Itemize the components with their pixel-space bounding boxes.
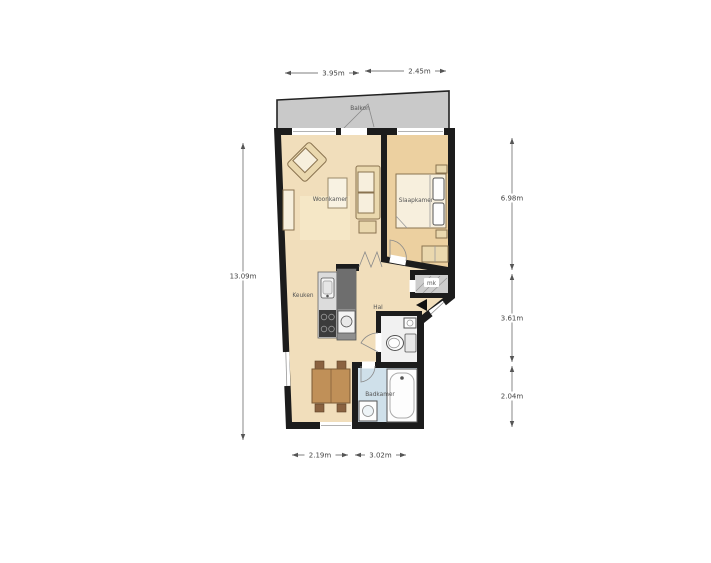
stove: [319, 310, 336, 337]
oven: [338, 311, 355, 333]
dim-arrow: [510, 356, 514, 362]
dim-label: 6.98m: [501, 195, 524, 203]
dimension-bottom-right: 3.02m: [355, 451, 406, 460]
bedroom-label: Slaapkamer: [399, 198, 434, 204]
kitchen-label: Keuken: [292, 293, 313, 299]
sink-faucet: [326, 295, 329, 298]
dim-arrow: [342, 453, 348, 457]
dim-label: 3.95m: [322, 70, 345, 78]
mk-label: mk: [427, 281, 437, 287]
hall-label: Hal: [373, 305, 383, 311]
dining-chair: [337, 361, 346, 369]
dimension-bottom-left: 2.19m: [292, 451, 348, 460]
dim-arrow: [355, 453, 361, 457]
dimension-top-left: 3.95m: [285, 69, 359, 78]
dim-arrow: [241, 434, 245, 440]
bathtub-faucet: [400, 376, 404, 380]
dimension-top-right: 2.45m: [365, 67, 446, 76]
dim-arrow: [353, 71, 359, 75]
dim-arrow: [440, 69, 446, 73]
dimension-right-middle: 3.61m: [497, 274, 528, 362]
dining-chair: [315, 404, 324, 412]
dim-label: 2.45m: [408, 68, 431, 76]
sofa: [356, 166, 380, 219]
kitchen-cabinet-top: [337, 269, 356, 309]
washbasin-bowl: [363, 406, 374, 417]
side-table: [359, 221, 376, 233]
toilet-bowl: [387, 336, 404, 351]
dining-table: [312, 369, 350, 403]
pillow: [433, 203, 444, 225]
living-room-label: Woonkamer: [313, 197, 348, 203]
sofa-cushion: [358, 193, 374, 213]
coffee-table: [328, 178, 347, 208]
toilet-hand-basin: [404, 318, 416, 328]
dim-label: 13.09m: [230, 273, 257, 281]
dining-chair: [315, 361, 324, 369]
balcony: Balkon: [277, 91, 449, 129]
bathroom-label: Badkamer: [365, 392, 395, 398]
dim-label: 3.02m: [369, 452, 392, 460]
dim-arrow: [241, 143, 245, 149]
washbasin: [359, 401, 377, 421]
dining-chair: [337, 404, 346, 412]
balcony-label: Balkon: [350, 106, 370, 112]
dimension-right-upper: 6.98m: [497, 138, 528, 270]
nightstand: [436, 165, 447, 173]
dim-arrow: [400, 453, 406, 457]
bedroom-door-opening: [390, 259, 406, 262]
living-bedroom-wall: [381, 135, 387, 258]
dim-arrow: [510, 366, 514, 372]
wardrobe: [422, 246, 448, 262]
sofa-cushion: [358, 172, 374, 192]
dim-arrow: [292, 453, 298, 457]
cooktop: [319, 310, 336, 337]
dim-arrow: [510, 264, 514, 270]
pillow: [433, 178, 444, 200]
dim-arrow: [285, 71, 291, 75]
nightstand: [436, 230, 447, 238]
dimension-right-lower: 2.04m: [497, 366, 528, 427]
sink-basin: [323, 281, 332, 294]
toilet-tank: [405, 334, 416, 352]
floorplan-drawing: Balkon mk: [0, 0, 711, 563]
bathroom-left-wall: [352, 362, 358, 429]
kitchen-block: [318, 269, 356, 340]
dim-label: 2.19m: [309, 452, 332, 460]
dim-arrow: [510, 421, 514, 427]
dim-arrow: [510, 138, 514, 144]
dim-label: 2.04m: [501, 393, 524, 401]
oven-door: [341, 316, 352, 327]
floorplan-page: Balkon mk: [0, 0, 711, 563]
dim-arrow: [365, 69, 371, 73]
tv-cabinet: [283, 190, 294, 230]
kitchen-sink: [321, 278, 334, 298]
dim-arrow: [510, 274, 514, 280]
dimension-left: 13.09m: [226, 143, 261, 440]
dim-label: 3.61m: [501, 315, 524, 323]
basin-body: [404, 318, 416, 328]
